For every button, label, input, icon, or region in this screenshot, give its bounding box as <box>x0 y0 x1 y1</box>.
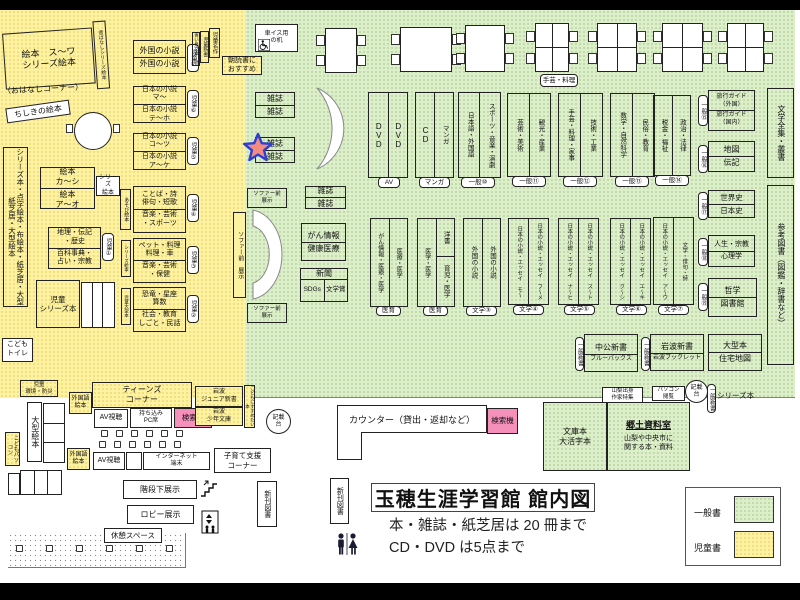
round-table <box>74 112 112 150</box>
chair-icon <box>113 124 120 133</box>
lobby-display: ロビー展示 <box>127 505 194 524</box>
reading-table <box>325 28 357 73</box>
stool-icon <box>166 545 173 552</box>
stool-icon <box>129 441 136 448</box>
shelf-jp-essays-au-poetry: 日本の小説・エッセイ ア〜ウ文学・俳句・詩 <box>653 217 694 305</box>
tag-shugei-ryori: 手芸・料理 <box>540 74 578 87</box>
bench <box>20 470 62 495</box>
shelf-literature-collections: 文学全集・叢書 <box>767 88 794 178</box>
tag-jidou-3: 児童③ <box>187 246 199 274</box>
tag-ippan-shinsho: 一般新書 <box>641 337 650 371</box>
series-books-label: シリーズ本 <box>717 391 763 400</box>
shelf-maps-biography: 地図伝記 <box>708 141 755 172</box>
shelf-jp-essays-mo-fume: 日本の小説・エッセイ モ〜日本の小説・エッセイ フ〜メ <box>508 218 549 305</box>
chair-icon <box>718 53 727 64</box>
lending-limit-note-av: CD・DVD は5点まで <box>389 536 629 557</box>
shelf-life-religion-psychology: 人生・宗教心理学 <box>708 235 755 267</box>
tag-ippan-19: 一般⑲ <box>698 283 708 311</box>
rest-space-label: 休憩スペース <box>104 528 162 543</box>
tag-jidou-1: 児童① <box>102 233 114 261</box>
literary-prize-corner: 文学賞 <box>324 280 348 301</box>
under-stairs-display: 階段下展示 <box>123 480 197 499</box>
chair-icon <box>764 53 773 64</box>
shelf-jp-essays-nahi-suto: 日本の小説・エッセイ ナ〜ヒ日本の小説・エッセイ ス〜ト <box>558 218 599 305</box>
ohanashi-shelf: 絵本 ス〜ワシリーズ絵本 <box>2 27 96 89</box>
search-terminal: 検索機 <box>487 408 518 434</box>
crescent-sofa-icon <box>249 207 287 302</box>
yamanashi-authors-display: 山梨出身作家特集 <box>602 387 643 403</box>
library-floor-map: 絵本 ス〜ワシリーズ絵本 昔ばなしシリーズ絵本 （おはなしコーナー） ちしきの絵… <box>0 0 800 600</box>
tag-bungaku-6: 文学⑥ <box>616 305 647 315</box>
floor-map-title: 玉穂生涯学習館 館内図 <box>371 483 595 512</box>
magazine-rack: 雑誌雑誌 <box>255 92 295 118</box>
chair-icon <box>569 31 578 42</box>
tag-ippan-12: 一般⑫ <box>563 176 597 187</box>
stool-icon <box>144 441 151 448</box>
asadoku-recommend-shelf: 朝読書におすすめ <box>222 56 262 75</box>
av-viewing-seat: AV視聴 <box>94 409 128 428</box>
chair-icon <box>703 53 712 64</box>
kids-toilet: こどもトイレ <box>2 338 33 362</box>
new-books-display: 新刊図書 <box>330 478 349 524</box>
recommended-for-kids-shelf: こどもにすすめたい本 <box>244 385 255 428</box>
shelf-unit <box>43 403 65 463</box>
kids-environment-disaster-shelf: 児童環境・防災 <box>20 380 58 397</box>
shelf-jp-novels-a-tsu: 日本の小説コ〜ツ日本の小説ア〜ケ <box>133 133 186 170</box>
shelf-art-tourism: 芸術・美術観光・産業 <box>507 93 551 177</box>
chair-icon <box>637 53 646 64</box>
tag-ippan-14: 一般⑭ <box>655 175 689 186</box>
tag-ippan-16: 一般⑯ <box>698 145 708 173</box>
shelf-cd-manga: CDマンガ <box>415 92 454 178</box>
legend-general-label: 一般書 <box>694 506 721 519</box>
chair-icon <box>764 31 773 42</box>
chair-icon <box>569 53 578 64</box>
stool-icon <box>106 545 113 552</box>
shelf-dvd: DVDDVD <box>368 92 408 178</box>
shelf-jp-novels-ma-ho: 日本の小説マ〜日本の小説テ〜ホ <box>133 86 186 123</box>
sofa-front-display-vertical: ソファー前 展示 <box>233 212 246 298</box>
shelf-large-books-maps: 大型本住宅地図 <box>708 334 762 371</box>
lending-limit-note-books: 本・雑誌・紙芝居は 20 冊まで <box>389 514 659 535</box>
yousho-section: 洋書 <box>437 219 455 256</box>
shelf-kotoba-arts: ことば・詩俳句・短歌音楽・芸術・スポーツ <box>133 186 186 233</box>
shelf-cancer-medical: がん情報・医療・医学医療・医学 <box>370 218 408 307</box>
elevator-icon <box>201 510 219 534</box>
stool-icon <box>161 430 168 437</box>
reading-table <box>400 27 452 72</box>
chair-icon <box>391 34 400 45</box>
tag-bungaku-3: 文学③ <box>466 306 497 316</box>
tag-ippan-17: 一般⑰ <box>698 192 708 220</box>
shelf-language-sports-music: 日本語・外国語スポーツ・音楽・演劇 <box>458 92 501 178</box>
byod-pc-seat: 持ち込みPC席 <box>130 408 172 428</box>
internet-terminal: インターネット端末 <box>143 452 210 470</box>
new-books-display: 新刊図書 <box>257 481 277 527</box>
asobi-ehon-shelf: あそび絵本 <box>120 189 131 230</box>
shelf-travel-guides: 旅行ガイド（外国）旅行ガイド（国内） <box>708 90 755 131</box>
chair-icon <box>526 53 535 64</box>
service-counter: カウンター（貸出・返却など） <box>337 405 487 433</box>
tag-ippan-18: 一般⑱ <box>698 238 708 266</box>
tag-bungaku-5: 文学⑤ <box>564 305 595 315</box>
sofa-front-display-top: ソファー前展示 <box>247 188 287 208</box>
legend-children-swatch <box>734 531 774 558</box>
shelf-pet-cooking: ペット・料理料理・車音楽・芸術・保健 <box>133 238 186 283</box>
jidou-ogata-side-shelf: 児童大型本 <box>121 288 131 325</box>
shelf-unit <box>81 282 115 328</box>
teens-corner: ティーンズコーナー <box>92 382 192 408</box>
shelf-dino-science: 恐竜・星座算数社会・教育しごと・民話 <box>133 287 186 332</box>
shelf-foreign-novels-kids: 外国の小説外国の小説 <box>133 40 186 74</box>
letterbox-bottom <box>0 583 800 600</box>
tag-ippan-10: 一般⑩ <box>461 177 495 188</box>
tag-bungaku-4: 文学④ <box>513 305 544 315</box>
chair-icon <box>316 55 325 66</box>
shelf-philosophy-library: 哲学図書館 <box>708 278 757 317</box>
foreign-picture-books-shelf: 外国語絵本 <box>69 392 92 414</box>
av-viewing-seat: AV視聴 <box>93 452 125 470</box>
stool-icon <box>114 441 121 448</box>
writing-stand: 記載台 <box>685 380 708 403</box>
you-are-here-star-icon <box>242 131 274 163</box>
tag-medical: 医育 <box>376 306 401 316</box>
chair-icon <box>653 53 662 64</box>
shelf-crafts-engineering: 手芸・料理・家事技術・工業 <box>558 93 603 177</box>
chair-icon <box>718 31 727 42</box>
tag-ippan-13: 一般⑬ <box>615 176 649 187</box>
legend-children-label: 児童書 <box>694 541 721 554</box>
chair-icon <box>703 31 712 42</box>
stool-icon <box>174 441 181 448</box>
large-picture-books-shelf: 大型絵本 <box>27 402 42 462</box>
reading-table <box>465 25 505 72</box>
chair-icon <box>391 54 400 65</box>
shelf-math-science-education: 数学・自然科学民俗・教育 <box>610 93 655 177</box>
shelf-chuko-shinsho: 中公新書ブルーバックス <box>584 334 638 372</box>
jidou-meisaku-shelf: 児童名作 <box>209 28 220 58</box>
chair-icon <box>505 53 514 64</box>
stool-icon <box>46 545 53 552</box>
stool-icon <box>99 441 106 448</box>
toilet-icon <box>334 532 360 556</box>
stairs-icon <box>199 478 219 498</box>
newspaper-rack: 新聞SDGs文学賞 <box>300 268 348 302</box>
series-braille-kamishibai-shelf: シリーズ本・点字絵本・布絵本・紙芝居・大型紙芝居・大型絵本 <box>3 147 28 307</box>
chair-icon <box>588 53 597 64</box>
letterbox-top <box>0 0 800 10</box>
shelf-medicine-childcare: 医学・医学洋書育児・医学 <box>417 218 455 307</box>
tag-ippan-15: 一般⑮ <box>698 95 708 126</box>
chair-icon <box>66 124 73 133</box>
cancer-info-health-rack: がん情報健康医療 <box>301 223 346 261</box>
foreign-picture-books-shelf: 外国語絵本 <box>67 448 90 470</box>
stool-icon <box>136 545 143 552</box>
tag-ippan-11: 一般⑪ <box>512 176 546 187</box>
shelf-iwanami-shinsho: 岩波新書岩波ブックレット <box>650 334 704 371</box>
tag-jidou-2: 児童② <box>187 295 199 323</box>
pc-browsing-desk: パソコン閲覧 <box>652 386 685 401</box>
stool-icon <box>146 430 153 437</box>
crescent-sofa-icon <box>311 86 351 171</box>
chair-icon <box>316 35 325 46</box>
tag-jidou-5: 児童⑤ <box>187 137 199 165</box>
chair-icon <box>357 35 366 46</box>
reading-table <box>535 23 569 72</box>
chair-icon <box>456 33 465 44</box>
tag-jidou-6: 児童⑥ <box>187 90 199 118</box>
shelf-tax-politics-law: 税金・福祉政治・法律 <box>653 95 691 176</box>
stool-icon <box>159 441 166 448</box>
jidou-series-shelf: 児童シリーズ本 <box>36 280 80 328</box>
chair-icon <box>637 31 646 42</box>
kids-pc-corner: こどもパソコン <box>5 432 20 466</box>
chair-icon <box>456 53 465 64</box>
reading-table <box>727 23 764 72</box>
magazine-rack: 雑誌雑誌 <box>305 186 346 209</box>
shelf-world-japan-history: 世界史日本史 <box>708 190 755 218</box>
chair-icon <box>526 31 535 42</box>
reading-table <box>597 23 637 72</box>
local-history-room: 郷土資料室山梨や中央市に関する本・資料 <box>607 402 690 471</box>
tag-jidou-4: 児童④ <box>187 194 199 222</box>
legend-general-swatch <box>734 496 774 523</box>
chair-icon <box>357 55 366 66</box>
sdgs-corner: SDGs <box>301 280 324 301</box>
writing-stand: 記載台 <box>266 409 291 434</box>
iwanami-junior-shinsho-shelf: 岩波ジュニア新書 <box>195 386 243 407</box>
ikuji-section: 育児・医学 <box>437 256 455 306</box>
series-ehon-side-shelf: シリーズ絵本 <box>121 240 131 277</box>
tag-ippan-shinsho: 一般新書 <box>707 384 716 413</box>
bunko-large-print-room: 文庫本大活字本 <box>543 402 607 471</box>
tag-series-ehon: シリーズ絵本 <box>96 176 120 196</box>
wheelchair-desk: 車イス用の机 <box>255 24 298 52</box>
tag-manga: マンガ <box>419 177 450 188</box>
stool-icon <box>76 545 83 552</box>
tag-av: AV <box>378 177 400 188</box>
wheelchair-icon <box>258 39 270 51</box>
shelf-jp-essays-kushi-eki: 日本の小説・エッセイ ク〜シ日本の小説・エッセイ エ〜キ <box>610 218 651 305</box>
bench <box>8 473 20 495</box>
tag-medical: 医育 <box>423 306 448 316</box>
shelf-ehon-a-shi: 絵本カ〜シ絵本ア〜オ <box>40 167 95 209</box>
chair-icon <box>505 33 514 44</box>
tag-bungaku-7: 文学⑦ <box>658 305 689 315</box>
jidou-shinsho-shelf: 児童新書 <box>200 31 209 63</box>
tag-ippan-shinsho: 一般新書 <box>575 337 584 371</box>
chair-icon <box>653 31 662 42</box>
childcare-support-corner: 子育て支援コーナー <box>214 448 271 473</box>
chair-icon <box>588 31 597 42</box>
sofa-front-display-bottom: ソファー前展示 <box>247 303 287 323</box>
stool-icon <box>116 430 123 437</box>
iwanami-shonen-bunko-shelf: 岩波少年文庫 <box>195 407 243 426</box>
service-counter-leg <box>337 432 362 460</box>
stool-icon <box>101 430 108 437</box>
shelf-foreign-novels: 外国の小説外国の小説 <box>463 218 501 307</box>
stool-icon <box>131 430 138 437</box>
reading-table <box>662 23 703 72</box>
shelf-reference-books: 参考図書（図鑑・辞書など） <box>767 185 794 365</box>
stool-icon <box>16 545 23 552</box>
stool-icon <box>176 430 183 437</box>
aoitori-bunko-shelf: 青い鳥文庫・他 <box>192 32 200 66</box>
shelf-geography-encyclopedia: 地理・伝記・歴史百科事典・占い・宗教 <box>48 227 101 269</box>
desk-seat <box>126 452 142 470</box>
